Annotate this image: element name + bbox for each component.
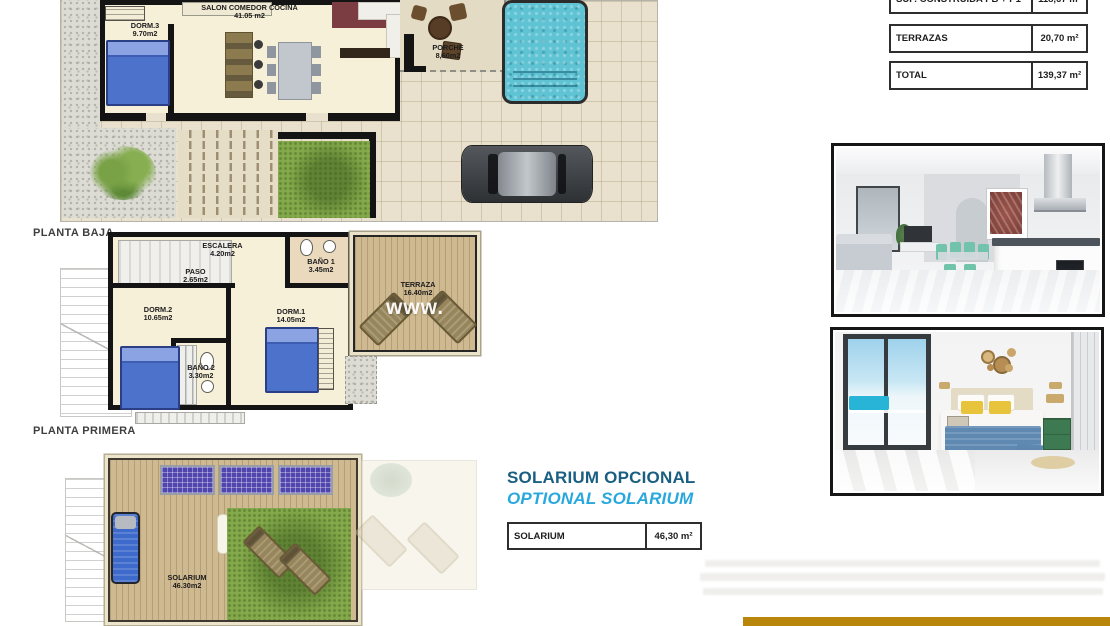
plan-title-planta-primera: PLANTA PRIMERA: [33, 425, 136, 437]
solar-panel: [160, 465, 215, 495]
faded-footer-text: [700, 573, 1105, 581]
room-area: 10.65m2: [128, 314, 188, 322]
garden-wall: [276, 132, 376, 139]
car-top-view: [462, 146, 592, 202]
wall-decor-basket: [1005, 364, 1013, 372]
swimming-pool: [502, 0, 588, 104]
ghost-neighbor-deck: [361, 460, 477, 590]
room-label-bano1: BAÑO 1 3.45m2: [292, 258, 350, 275]
room-label-paso: PASO 2.65m2: [168, 268, 223, 285]
floor-plan-solarium: SOLARIUM 46.30m2: [65, 448, 485, 626]
sunlight-patches: [835, 450, 975, 491]
lamp: [1046, 394, 1064, 403]
bed-dorm2: [120, 346, 180, 410]
stool: [254, 40, 263, 49]
walkway-strip: [135, 412, 245, 424]
faded-footer-text: [703, 588, 1103, 595]
hood-duct: [1044, 154, 1072, 198]
floor-plan-planta-baja: DORM.3 9.70m2 SALON COMEDOR COCINA 41.05…: [60, 0, 658, 222]
car-rear-window: [558, 154, 566, 194]
solar-panel: [278, 465, 333, 495]
sofa: [836, 234, 892, 274]
solarium-table-label: SOLARIUM: [509, 531, 645, 542]
dining-table: [278, 42, 312, 100]
lounger-pillow: [115, 516, 136, 529]
tv: [904, 226, 932, 242]
summary-row-construida: SUP. CONSTRUIDA PB + P1 118,67 m²: [889, 0, 1088, 14]
tv-console: [340, 48, 390, 58]
porch-wall-foot: [404, 66, 426, 72]
driveway: [178, 130, 278, 218]
toilet: [300, 239, 313, 256]
sink: [323, 240, 336, 253]
gravel-square: [345, 356, 377, 404]
room-area: 3.45m2: [292, 266, 350, 274]
chair: [267, 82, 276, 94]
grass-area: [227, 508, 351, 620]
round-rug: [1031, 456, 1075, 469]
ghost-lounger: [406, 521, 460, 575]
heading-solarium-opcional: SOLARIUM OPCIONAL: [507, 468, 696, 488]
room-label-dorm1: DORM.1 14.05m2: [256, 308, 326, 325]
room-label-salon: SALON COMEDOR COCINA 41.05 m2: [192, 4, 307, 21]
footer-gold-bar: [743, 617, 1110, 626]
ghost-bush: [370, 463, 412, 497]
room-area: 3.30m2: [172, 372, 230, 380]
yellow-pillow: [989, 401, 1011, 414]
room-label-porche: PORCHE 8,60m2: [416, 44, 480, 61]
porch-chair: [449, 3, 468, 22]
bed-dorm1: [265, 327, 319, 393]
room-label-terraza: TERRAZA 16.40m2: [382, 281, 454, 298]
closet-dorm1: [318, 328, 334, 390]
room-area: 46.30m2: [147, 582, 227, 590]
room-area: 9.70m2: [115, 30, 175, 38]
pool-view: [849, 396, 889, 410]
room-area: 8,60m2: [416, 52, 480, 60]
palm-trees: [90, 146, 156, 200]
stool: [254, 60, 263, 69]
solar-panel: [219, 465, 274, 495]
wall-sconce: [939, 382, 950, 389]
yellow-pillow: [961, 401, 983, 414]
ghost-lounger: [354, 514, 408, 568]
room-label-escalera: ESCALERA 4.20m2: [185, 242, 260, 259]
summary-label: TOTAL: [891, 70, 1031, 81]
room-label-bano2: BAÑO 2 3.30m2: [172, 364, 230, 381]
pool-lines: [513, 71, 577, 89]
island-counter: [992, 238, 1100, 246]
terrace-rail: [849, 410, 925, 413]
extractor-hood: [1034, 198, 1086, 212]
bed-dorm3: [106, 40, 170, 106]
chair: [267, 64, 276, 76]
wall: [285, 283, 353, 288]
garden-wall: [369, 132, 376, 218]
bedroom-scene: [835, 332, 1099, 491]
floor-plan-planta-primera: www. ESCALERA 4.20m2 PASO 2.65m2 BAÑO 1 …: [60, 228, 520, 418]
kitchen-island: [225, 32, 253, 98]
heading-optional-solarium: OPTIONAL SOLARIUM: [507, 489, 693, 509]
summary-row-terrazas: TERRAZAS 20,70 m²: [889, 24, 1088, 53]
room-area: 16.40m2: [382, 289, 454, 297]
room-label-dorm2: DORM.2 10.65m2: [128, 306, 188, 323]
floor-reflections: [836, 270, 1100, 312]
faded-footer-text: [705, 560, 1100, 567]
wall: [171, 338, 231, 343]
window-divider: [884, 338, 888, 446]
car-windshield: [488, 154, 498, 194]
wall-house-bottom: [100, 113, 400, 121]
summary-value: 20,70 m²: [1031, 26, 1086, 51]
room-area: 4.20m2: [185, 250, 260, 258]
art-print-palm: [990, 192, 1022, 234]
wall: [226, 288, 231, 410]
photo-bedroom: [830, 327, 1104, 496]
porch-table: [428, 16, 452, 40]
room-area: 14.05m2: [256, 316, 326, 324]
green-nightstand: [1043, 418, 1071, 450]
chair: [312, 82, 321, 94]
summary-value: 118,67 m²: [1031, 0, 1086, 12]
closet-dorm3: [105, 6, 145, 21]
summary-label: SUP. CONSTRUIDA PB + P1: [891, 0, 1031, 5]
summary-label: TERRAZAS: [891, 33, 1031, 44]
brochure-page: DORM.3 9.70m2 SALON COMEDOR COCINA 41.05…: [0, 0, 1110, 626]
wall-decor-basket: [987, 364, 994, 371]
room-label-solarium: SOLARIUM 46.30m2: [147, 574, 227, 591]
wall-sconce: [1049, 382, 1062, 389]
room-area: 2.65m2: [168, 276, 223, 284]
tv-console: [900, 242, 940, 252]
wall-decor-basket: [1007, 348, 1016, 357]
stool: [254, 80, 263, 89]
solarium-table-value: 46,30 m²: [645, 524, 700, 548]
photo-living-kitchen: [831, 143, 1105, 317]
summary-value: 139,37 m²: [1031, 63, 1086, 88]
dining-table: [938, 252, 988, 260]
room-area: 41.05 m2: [192, 12, 307, 20]
sink: [201, 380, 214, 393]
chair: [267, 46, 276, 58]
solarium-table-row: SOLARIUM 46,30 m²: [507, 522, 702, 550]
room-label-dorm3: DORM.3 9.70m2: [115, 22, 175, 39]
chair: [312, 64, 321, 76]
chair: [312, 46, 321, 58]
summary-row-total: TOTAL 139,37 m²: [889, 61, 1088, 90]
car-roof: [498, 152, 556, 196]
blue-lounger: [111, 512, 140, 584]
door-gap: [146, 113, 166, 121]
watermark: www.: [386, 296, 444, 320]
grass-patch: [278, 141, 370, 218]
door-gap: [306, 113, 328, 121]
living-kitchen-scene: [836, 148, 1100, 312]
